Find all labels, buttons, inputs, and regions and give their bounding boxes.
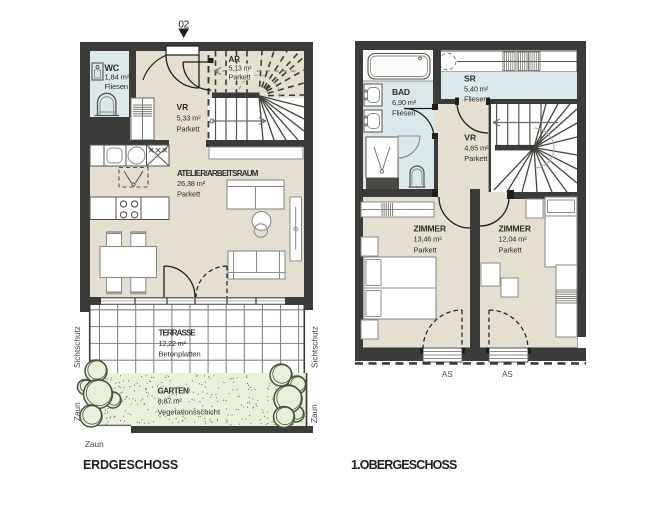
svg-text:BAD: BAD	[392, 87, 410, 97]
svg-text:AS: AS	[502, 370, 513, 379]
svg-text:26,38 m²: 26,38 m²	[177, 179, 206, 188]
svg-text:ATELIER/ARBEITSRAUM: ATELIER/ARBEITSRAUM	[177, 169, 259, 178]
svg-text:Zaun: Zaun	[310, 404, 319, 423]
svg-text:TERRASSE: TERRASSE	[159, 329, 197, 338]
svg-text:WC: WC	[105, 63, 120, 73]
svg-text:Betonplatten: Betonplatten	[159, 350, 201, 359]
svg-text:Sichtschutz: Sichtschutz	[73, 326, 82, 368]
svg-text:VR: VR	[177, 102, 189, 112]
svg-text:13,46 m²: 13,46 m²	[414, 235, 443, 244]
svg-text:AS: AS	[442, 370, 453, 379]
svg-text:GARTEN: GARTEN	[158, 387, 190, 396]
svg-text:12,04 m²: 12,04 m²	[499, 235, 528, 244]
svg-text:ZIMMER: ZIMMER	[414, 224, 446, 234]
svg-text:5,40 m²: 5,40 m²	[464, 85, 489, 94]
svg-text:Parkett: Parkett	[414, 246, 438, 255]
svg-text:12,22 m²: 12,22 m²	[159, 339, 187, 348]
svg-text:Fliesen: Fliesen	[464, 95, 487, 104]
svg-text:ZIMMER: ZIMMER	[499, 224, 531, 234]
svg-text:Fliesen: Fliesen	[105, 82, 128, 91]
svg-text:ERDGESCHOSS: ERDGESCHOSS	[83, 458, 178, 472]
svg-text:Vegetationsschicht: Vegetationsschicht	[158, 408, 221, 417]
svg-text:SR: SR	[464, 74, 476, 84]
svg-text:4,65 m²: 4,65 m²	[464, 144, 489, 153]
svg-text:Parkett: Parkett	[229, 73, 251, 82]
svg-text:VR: VR	[464, 133, 476, 143]
svg-text:Sichtschutz: Sichtschutz	[311, 326, 320, 368]
svg-text:Parkett: Parkett	[464, 154, 488, 163]
svg-text:8,87 m²: 8,87 m²	[158, 397, 183, 406]
svg-text:6,90 m²: 6,90 m²	[392, 98, 417, 107]
svg-text:5,33 m²: 5,33 m²	[177, 114, 202, 123]
svg-text:Fliesen: Fliesen	[392, 109, 415, 118]
svg-text:Parkett: Parkett	[177, 125, 201, 134]
svg-text:Parkett: Parkett	[499, 246, 523, 255]
svg-text:1,84 m²: 1,84 m²	[105, 73, 130, 82]
svg-text:Parkett: Parkett	[177, 190, 201, 199]
svg-text:Zaun: Zaun	[85, 440, 104, 449]
svg-text:Zaun: Zaun	[73, 402, 82, 421]
svg-text:1.OBERGESCHOSS: 1.OBERGESCHOSS	[351, 458, 457, 472]
svg-text:5,13 m²: 5,13 m²	[229, 64, 253, 73]
